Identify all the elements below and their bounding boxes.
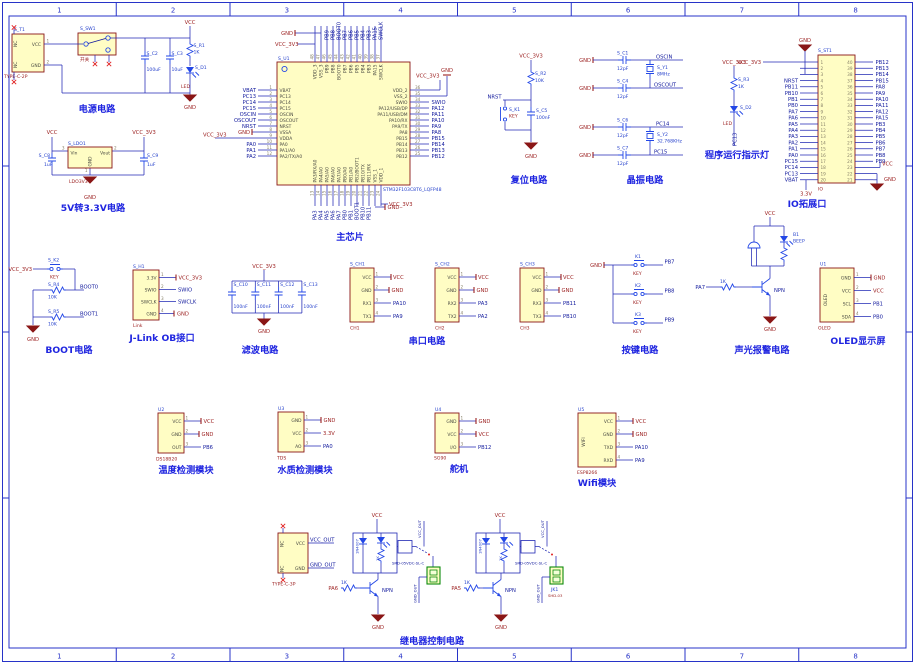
- pin-number: 21: [358, 190, 363, 196]
- net-label: PA1: [788, 147, 798, 153]
- pin-name: TX2: [447, 314, 457, 320]
- block-title: 水质检测模块: [277, 464, 333, 476]
- pin-number: 15: [322, 190, 327, 196]
- pin-number: 27: [847, 140, 853, 145]
- net-label: SWCLK: [379, 21, 385, 40]
- pin-name: VDD_3: [313, 64, 319, 79]
- capacitor-symbol: [527, 107, 535, 120]
- value: 1K: [464, 580, 471, 586]
- pin-number: 1: [161, 272, 164, 277]
- diode-symbol: [482, 538, 490, 544]
- block-title: 串口电路: [409, 335, 447, 347]
- net-label: PC14: [785, 165, 799, 171]
- gnd-label: GND: [579, 86, 591, 92]
- pin-number: 38: [370, 54, 375, 60]
- value: 1K: [341, 580, 348, 586]
- pin-number: 46: [322, 54, 327, 60]
- gnd-label: GND: [441, 68, 453, 74]
- part-name: TYPE-C-3P: [271, 582, 296, 588]
- sheet-frame: 1 2 3 4 5 6 7 8 1 2: [3, 3, 913, 662]
- pin-number: 31: [847, 116, 853, 121]
- column-number: 5: [512, 7, 516, 15]
- net-label: PB13: [876, 66, 889, 72]
- gnd-symbol: [871, 184, 883, 190]
- pin-number: 44: [334, 54, 339, 60]
- pin-number: 3: [186, 442, 189, 447]
- net-label: SWIO: [178, 287, 192, 293]
- power-label: VCC_3V3: [252, 264, 276, 270]
- led-symbol: [500, 537, 508, 543]
- pin-name: PA3/RX/A0: [313, 159, 319, 182]
- pin-number: 29: [415, 127, 421, 132]
- pin-name: PB4: [361, 64, 367, 73]
- net-label: VCC_OUT: [310, 538, 335, 544]
- gnd-symbol: [258, 319, 270, 325]
- pin-number: 11: [267, 145, 273, 150]
- pin-number: 3: [546, 298, 549, 303]
- pin-number: 12: [267, 151, 273, 156]
- part-name: OLED: [818, 326, 831, 332]
- column-number: 5: [512, 653, 516, 661]
- pin-number: 24: [376, 190, 381, 196]
- value: 10K: [48, 295, 58, 301]
- pin-name: PA4/A0: [319, 167, 325, 183]
- resistor-symbol: [528, 70, 534, 86]
- power-circuit-section: S_T1 NC NC VCC GND 1 2 TYPE-C-2P S_SW1 开…: [3, 20, 207, 115]
- value: 1N4007: [478, 538, 483, 554]
- net-label: NRST: [242, 124, 257, 130]
- part-name: SRD-05VDC-SL-C: [392, 561, 425, 566]
- crystal-group: GND S_C6 12pF PC14 S_Y2 32.768KHz GND S_…: [579, 118, 683, 168]
- pin-name: SDA: [842, 314, 851, 320]
- frame-cell: 5: [512, 648, 571, 662]
- pin-name: SWIO: [396, 100, 408, 106]
- pin-number: 1: [461, 416, 464, 421]
- net-label: VCC_OUT: [540, 519, 545, 538]
- pin-number: 19: [821, 171, 827, 176]
- pin-number: 40: [847, 60, 853, 65]
- led-symbol: [377, 537, 385, 543]
- water-module-section: U3 GND VCC AO 1 2 3 GND 3.3V PA0 TDS 水质检…: [276, 406, 335, 476]
- block-title: BOOT电路: [45, 344, 93, 356]
- io-header-section: GND VCC_3V3 S_ST1 1 2 3 4 NRST 5 PB11: [737, 38, 895, 210]
- reset-section: VCC_3V3 S_R2 10K NRST S_K1 KEY S_C5 100n…: [488, 54, 551, 187]
- pin-name: VBAT: [280, 88, 292, 94]
- gnd-symbol: [372, 615, 384, 621]
- pin-name: VCC: [447, 275, 456, 281]
- net-label: PB10: [563, 314, 576, 320]
- jlink-section: S_H1 3.3V SWIO SWCLK GND 1 2 3 4 VCC_3V3…: [128, 264, 202, 344]
- net-label: PB12: [432, 154, 445, 160]
- power-label: VCC_3V3: [416, 74, 440, 80]
- pin-name: VCC: [532, 275, 541, 281]
- frame-cell: 8: [853, 3, 912, 17]
- net-label: PA10: [393, 301, 406, 307]
- designator: U5: [578, 407, 584, 413]
- designator: S_Y1: [657, 65, 668, 71]
- pin-number: 7: [269, 121, 272, 126]
- pin-name: VSS_2: [394, 94, 408, 100]
- pin-name: NC: [13, 41, 19, 47]
- power-label: VCC: [882, 162, 893, 168]
- pin-name: SCL: [843, 301, 852, 307]
- designator: S_C11: [257, 282, 271, 288]
- pin-number: 1: [47, 39, 50, 44]
- value: 100nF: [234, 304, 249, 310]
- gnd-label: GND: [177, 312, 189, 318]
- pin-number: 19: [346, 190, 351, 196]
- gnd-symbol: [184, 95, 196, 101]
- gnd-label: GND: [590, 263, 602, 269]
- designator: U1: [820, 262, 826, 268]
- crystal-symbol: [646, 127, 654, 145]
- power-label: VCC_3V3: [179, 276, 203, 282]
- pin-name: OSCOUT: [280, 118, 299, 124]
- power-label: VCC_3V3: [519, 54, 543, 60]
- net-label: PA7: [788, 109, 798, 115]
- value: 1K: [194, 50, 201, 56]
- wires: [44, 26, 190, 95]
- pin-number: 25: [415, 151, 421, 156]
- part-name: LDO3V3: [69, 179, 88, 185]
- net-label: PC15: [654, 150, 667, 156]
- pin-name: VSSA: [280, 130, 292, 136]
- transistor-label: NPN: [505, 588, 516, 594]
- pin-name: VCC: [292, 431, 301, 437]
- part-name: IO: [818, 187, 823, 193]
- pin-name: PB1/A0: [349, 167, 355, 183]
- pin-name: SWCLK: [141, 299, 157, 305]
- wifi-section: U5 WIFI VCC GND TXD RXD 1 2 3 4 VCC GND …: [577, 407, 648, 489]
- gnd-symbol: [495, 615, 507, 621]
- pin-name: GND: [361, 288, 372, 294]
- pin-number: 12: [821, 128, 827, 133]
- pin-name: BOOT0: [337, 64, 343, 80]
- serial-connector: S_CH3 VCC GND RX3 TX3 1 2 3 4 VCC GND PB…: [520, 262, 576, 332]
- net-label: PB11: [785, 85, 798, 91]
- pin-number: 4: [821, 78, 824, 83]
- pin-number: 40: [358, 54, 363, 60]
- pin-name: PA15: [373, 64, 379, 75]
- pin-number: 9: [821, 109, 824, 114]
- frame-cell: 1: [57, 3, 116, 17]
- net-label: PA7: [695, 285, 705, 291]
- transistor-label: NPN: [774, 288, 785, 294]
- net-label: PA10: [635, 445, 648, 451]
- gnd-label: GND: [258, 329, 270, 335]
- column-number: 6: [626, 653, 631, 661]
- designator: S_C12: [280, 282, 294, 288]
- frame-cell: 5: [512, 3, 571, 17]
- designator: S_Y2: [657, 132, 668, 138]
- pin-number: 2: [269, 91, 272, 96]
- designator: S_C13: [303, 282, 317, 288]
- net-label: PA9: [635, 458, 645, 464]
- part-name: SG90: [434, 456, 446, 462]
- pin-number: 14: [316, 190, 321, 196]
- value: KEY: [633, 300, 642, 306]
- net-label: PB11: [563, 301, 576, 307]
- pin-name: GND: [603, 432, 614, 438]
- gnd-label: GND: [324, 418, 336, 424]
- pin-name: NC: [280, 566, 286, 572]
- net-label: PA0: [788, 153, 798, 159]
- designator: S_H1: [133, 264, 145, 270]
- key-row: K2 KEY PB8: [613, 283, 675, 306]
- pin-number: 2: [306, 428, 309, 433]
- pin-name: PA7/A0: [337, 167, 343, 183]
- crystal-group: GND S_C1 12pF OSCIN S_Y1 8MHz GND S_C4 1…: [579, 51, 683, 101]
- designator: S_K1: [509, 107, 520, 113]
- designator: S_LDO1: [68, 141, 86, 147]
- pin-number: 36: [415, 85, 421, 90]
- designator: S_SW1: [80, 26, 96, 32]
- net-label: GND_OUT: [413, 584, 418, 603]
- block-title: 电源电路: [79, 103, 117, 115]
- column-number: 8: [853, 653, 857, 661]
- part-name: TYPE-C-2P: [3, 74, 28, 80]
- pin-number: 4: [618, 455, 621, 460]
- power-label: VCC_3V3: [132, 130, 156, 136]
- pin-name: OUT: [172, 445, 182, 451]
- alarm-section: VCC B1 BEEP NPN 1K PA7 GND 声光报警电路: [695, 211, 805, 356]
- value: 10K: [48, 322, 58, 328]
- button-symbol: [501, 107, 507, 121]
- value: 100nF: [280, 304, 295, 310]
- crystal-section: GND S_C1 12pF OSCIN S_Y1 8MHz GND S_C4 1…: [579, 51, 683, 168]
- pin-name: VDD_2: [393, 88, 408, 94]
- pin-number: 4: [856, 311, 859, 316]
- contact-dot: [428, 554, 430, 556]
- pin-name: 3.3V: [147, 275, 157, 281]
- pin-number: 30: [415, 121, 421, 126]
- value: 10uF: [172, 67, 184, 73]
- pin-number: 3: [461, 442, 464, 447]
- run-led-section: VCC_3V3 S_R3 1K S_D2 LED PC13 程序运行指示灯: [705, 60, 770, 161]
- gnd-label: GND: [562, 288, 574, 294]
- switch-label: 开关: [80, 56, 90, 63]
- net-label: PA15: [876, 116, 889, 122]
- pin-name: RXD: [604, 458, 614, 464]
- value: 100nF: [536, 115, 551, 121]
- pin-name: PA1/A0: [280, 148, 296, 154]
- pin-name: PB11/RX: [367, 164, 373, 183]
- io-pin-row: 2: [800, 66, 824, 71]
- value: 100nF: [257, 304, 272, 310]
- pin-number: 2: [186, 429, 189, 434]
- column-number: 2: [171, 7, 175, 15]
- filter-cap: S_C11 100nF: [251, 281, 271, 313]
- led-symbol: [186, 67, 194, 73]
- pin-number: 26: [847, 147, 853, 152]
- pin-name: VCC: [362, 275, 371, 281]
- pin-number: 6: [821, 91, 824, 96]
- pin-name: AO: [295, 444, 302, 450]
- pin-number: 38: [847, 72, 853, 77]
- designator: U2: [158, 407, 164, 413]
- column-number: 1: [57, 7, 61, 15]
- power-label: VCC_3V3: [203, 133, 227, 139]
- pin-name: VDD_1: [379, 168, 385, 183]
- block-title: IO拓展口: [788, 198, 827, 210]
- power-label: VCC: [204, 419, 215, 425]
- pin-name: GND: [31, 63, 42, 69]
- power-label: VCC: [393, 275, 404, 281]
- frame-cell: 6: [626, 3, 685, 17]
- pin-number: 33: [847, 103, 853, 108]
- designator: S_R3: [738, 77, 749, 83]
- net-label: PB11: [367, 207, 373, 220]
- frame-cell: 4: [398, 3, 457, 17]
- servo-section: U4 GND VCC I/O 1 2 3 GND VCC PB12 SG90 舵…: [434, 407, 491, 475]
- pin-number: 28: [847, 134, 853, 139]
- pin-number: 8: [821, 103, 824, 108]
- pin-number: 33: [415, 103, 421, 108]
- net-label: GND_OUT: [536, 584, 541, 603]
- net-label: PA9: [876, 91, 886, 97]
- wires: [503, 60, 531, 142]
- net-label: PB7: [665, 260, 675, 266]
- pin-name: VCC: [842, 288, 851, 294]
- pin-number: 21: [847, 178, 853, 183]
- gnd-label: GND: [636, 432, 648, 438]
- part-name: CH1: [350, 326, 360, 332]
- pin-name: VCC: [447, 432, 456, 438]
- npn-transistor-symbol: [752, 279, 770, 296]
- designator: S_C8: [39, 153, 50, 159]
- serial-connector: S_CH2 VCC GND RX2 TX2 1 2 3 4 VCC GND PA…: [435, 262, 489, 332]
- pin-number: 3: [62, 146, 65, 151]
- button-symbol: [631, 290, 647, 296]
- keys-section: GND K1 KEY PB7 K2 KEY PB8 K3 KEY PB9 按键电…: [590, 254, 674, 356]
- pin-name: PC15: [280, 106, 292, 112]
- gnd-label: GND: [202, 432, 214, 438]
- gnd-label: GND: [84, 195, 96, 201]
- relay-conn-section: NC NC VCC GND VCC_OUT GND_OUT TYPE-C-3P: [271, 524, 336, 588]
- pin-number: 1: [186, 416, 189, 421]
- part-name: STM32F103C8T6_LQFP48: [383, 187, 442, 193]
- gnd-symbol: [27, 326, 39, 332]
- part-name: SRD-05VDC-SL-C: [515, 561, 548, 566]
- designator: K3: [635, 312, 641, 318]
- pin-number: 2: [376, 285, 379, 290]
- value: 1K: [738, 84, 745, 90]
- pin-number: 2: [546, 285, 549, 290]
- chip-top-pins: 48 VDD_3 47 VSS_3 46 PB9 PB9 45 PB8 PB8 …: [310, 21, 385, 80]
- key-row: K3 KEY PB9: [613, 312, 675, 335]
- part-name: TDS: [276, 456, 286, 462]
- net-label: PA8: [876, 85, 886, 91]
- pin-name: PA9/TX: [392, 124, 407, 130]
- net-label: PB5: [876, 134, 886, 140]
- pin-name: PC14: [280, 100, 292, 106]
- net-label: BOOT0: [80, 285, 98, 291]
- pin-number: 1: [618, 416, 621, 421]
- value: 1K: [498, 556, 503, 561]
- value: 8MHz: [657, 72, 670, 78]
- part-name: Link: [133, 323, 143, 329]
- value: 10K: [535, 78, 545, 84]
- pin-name: TX1: [362, 314, 372, 320]
- io-pin-row: 3: [800, 72, 824, 77]
- pin-number: 3: [306, 441, 309, 446]
- gnd-label: GND: [764, 327, 776, 333]
- pin-name: PB14: [396, 142, 407, 148]
- frame-cell: 3: [285, 3, 344, 17]
- pin-number: 28: [415, 133, 421, 138]
- gnd-label: GND: [392, 288, 404, 294]
- value: 1K: [375, 556, 380, 561]
- relay-unit: VCC 1N4007 1K VCC_OUT SRD-05VDC-SL-C GND…: [328, 513, 440, 631]
- gnd-label: GND: [184, 105, 196, 111]
- key-rows: K1 KEY PB7 K2 KEY PB8 K3 KEY PB9: [613, 254, 675, 335]
- value: 100uF: [147, 67, 162, 73]
- pin-number: 41: [352, 54, 357, 60]
- temp-module-section: U2 VCC GND OUT 1 2 3 VCC GND PB6 DS18B20…: [156, 407, 215, 476]
- net-label: PA5: [451, 586, 461, 592]
- designator: S_C2: [147, 51, 158, 57]
- npn-transistor-symbol: [360, 580, 378, 597]
- designator: S_D2: [740, 105, 752, 111]
- power-label: VCC: [765, 211, 776, 217]
- button-symbol: [631, 319, 647, 325]
- net-label: OSCIN: [656, 55, 673, 61]
- net-label: PA2: [478, 314, 488, 320]
- transistor-label: NPN: [382, 588, 393, 594]
- module-side-label: OLED: [823, 293, 829, 306]
- relay-coil: [398, 541, 412, 554]
- pin-number: 39: [364, 54, 369, 60]
- block-title: 按键电路: [622, 344, 660, 356]
- npn-transistor-symbol: [483, 580, 501, 597]
- ldo-section: VCC VCC_3V3 S_LDO1 Vin Vout GND 3 2 1 S_…: [39, 130, 159, 214]
- net-label: NRST: [488, 95, 503, 101]
- pin-name: GND: [291, 418, 302, 424]
- pin-name: TX3: [532, 314, 542, 320]
- pin-number: 32: [415, 109, 421, 114]
- block-title: 舵机: [450, 463, 469, 475]
- pin-number: 4: [376, 311, 379, 316]
- frame-cell: 1: [57, 648, 116, 662]
- power-label: VCC: [372, 513, 383, 519]
- value: 1K: [720, 279, 727, 285]
- pin-number: 37: [847, 78, 853, 83]
- designator: S_C4: [617, 79, 628, 85]
- designator: K2: [635, 283, 641, 289]
- column-number: 7: [740, 653, 744, 661]
- pin-number: 1: [376, 272, 379, 277]
- terminal-slot: [553, 577, 560, 582]
- pin-number: 1: [546, 272, 549, 277]
- value: 12pF: [617, 133, 629, 139]
- pin-name: VSS_1: [373, 169, 379, 183]
- pin-name: PB0/A0: [343, 167, 349, 183]
- gnd-label: GND: [799, 38, 811, 44]
- net-label: PB6: [203, 445, 213, 451]
- pin-name: RX2: [448, 301, 457, 307]
- power-label: VCC: [47, 130, 58, 136]
- frame-cell: 7: [740, 3, 799, 17]
- pin-name: NC: [280, 541, 286, 547]
- designator: S_R2: [535, 71, 546, 77]
- column-number: 4: [398, 7, 403, 15]
- capacitor-symbol: [228, 287, 236, 300]
- pin-number: 42: [346, 54, 351, 60]
- net-label: SWCLK: [178, 299, 197, 305]
- schematic-sheet: 1 2 3 4 5 6 7 8 1 2: [0, 0, 915, 664]
- pin-number: 43: [340, 54, 345, 60]
- net-label: PB0: [788, 103, 798, 109]
